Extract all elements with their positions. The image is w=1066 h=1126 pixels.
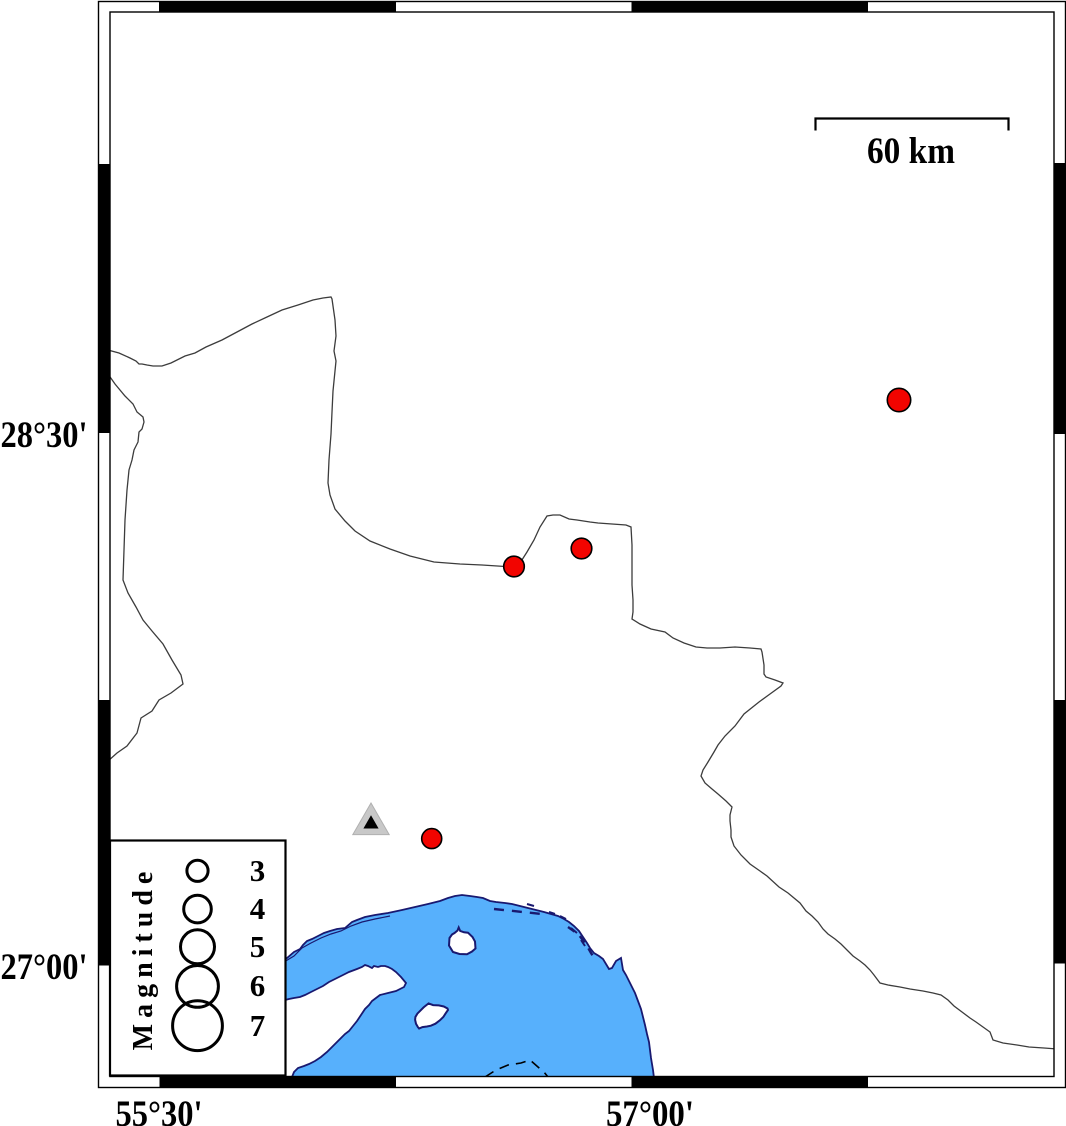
svg-text:Magnitude: Magnitude [128, 866, 159, 1051]
svg-text:28°30': 28°30' [1, 415, 88, 456]
svg-text:4: 4 [250, 891, 266, 926]
svg-text:60 km: 60 km [867, 131, 955, 172]
svg-text:3: 3 [250, 853, 266, 888]
svg-text:5: 5 [250, 929, 266, 964]
svg-text:7: 7 [250, 1008, 266, 1043]
svg-text:57°00': 57°00' [606, 1094, 694, 1126]
svg-text:6: 6 [250, 968, 266, 1003]
svg-text:55°30': 55°30' [116, 1094, 203, 1126]
svg-text:27°00': 27°00' [1, 947, 88, 988]
